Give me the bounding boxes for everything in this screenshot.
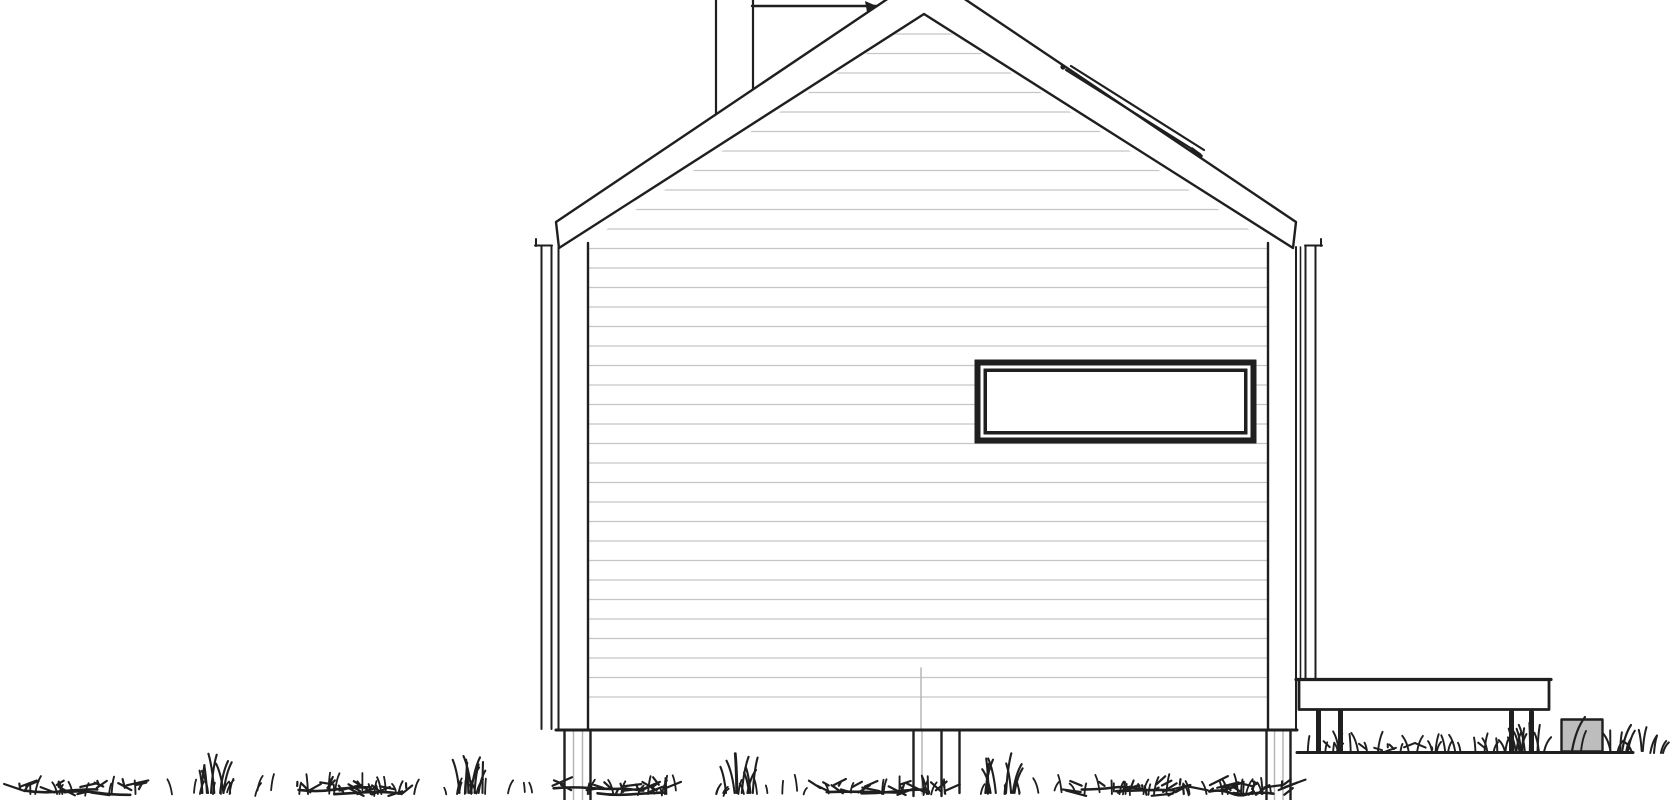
grass-blade [524, 783, 525, 792]
grass-blade [1005, 785, 1006, 794]
grass-blade [334, 785, 335, 795]
grass-blade [987, 779, 988, 794]
grass-blade [782, 781, 783, 794]
grass-blade [483, 762, 484, 793]
grass-blade [928, 776, 929, 794]
deck-slab [1299, 680, 1549, 710]
grass-blade [1350, 734, 1351, 751]
grass-stroke [1180, 779, 1181, 785]
grass-blade [1510, 742, 1511, 751]
window-glass [987, 372, 1245, 432]
grass-blade [944, 779, 945, 793]
grass-stroke [1282, 781, 1283, 787]
grass-blade [1529, 723, 1530, 751]
grass-blade [1496, 738, 1497, 751]
grass-stroke [1142, 785, 1143, 790]
grass-stroke [1432, 747, 1433, 749]
grass-blade [230, 783, 231, 794]
elevation-drawing [0, 0, 1670, 800]
grass-stroke [19, 784, 20, 789]
snow-guard-end-cap [1060, 64, 1065, 69]
elevation-drawing-canvas [0, 0, 1670, 800]
grass-blade [485, 779, 486, 794]
grass-blade [1126, 784, 1127, 794]
grass-blade [135, 781, 136, 795]
grass-blade [465, 780, 466, 794]
grass-blade [1243, 784, 1244, 796]
window [975, 360, 1256, 443]
